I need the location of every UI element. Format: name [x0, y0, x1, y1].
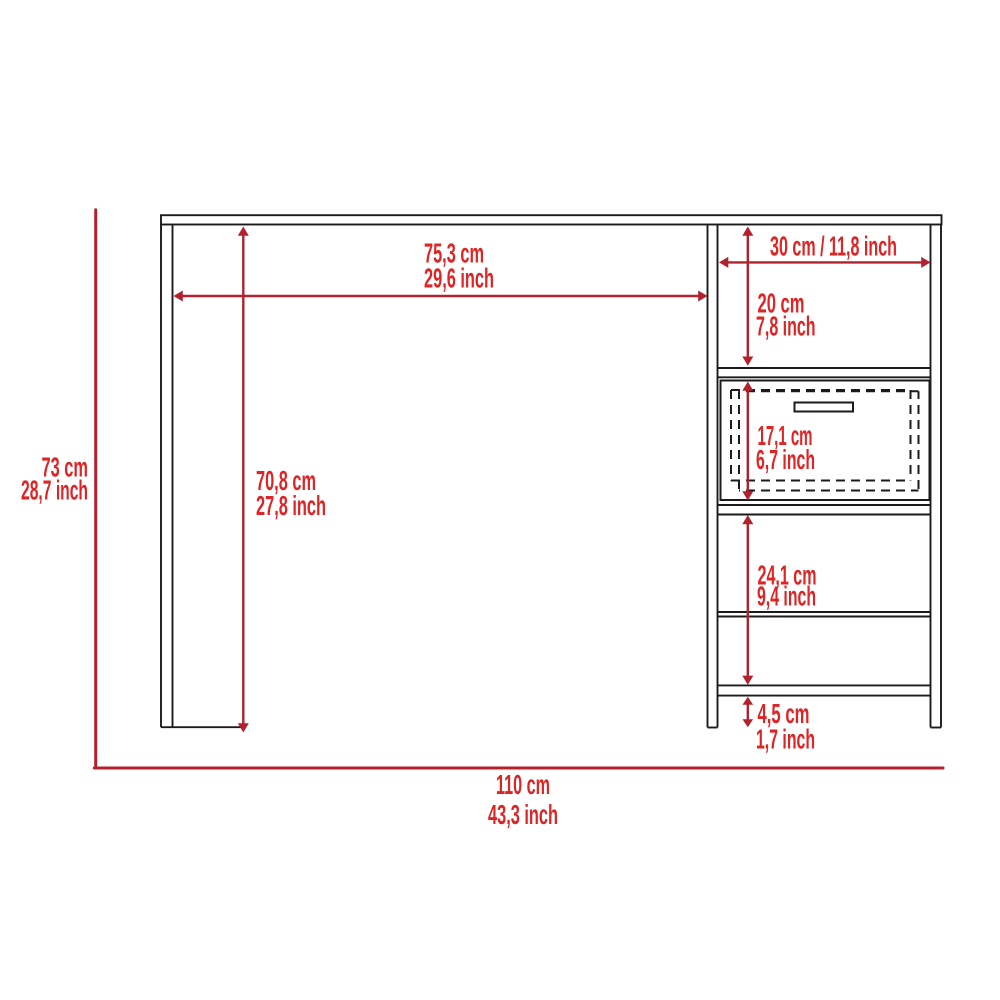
- svg-text:7,8 inch: 7,8 inch: [756, 311, 816, 342]
- svg-text:43,3 inch: 43,3 inch: [488, 799, 558, 830]
- svg-text:110 cm: 110 cm: [496, 769, 550, 800]
- svg-text:29,6 inch: 29,6 inch: [424, 262, 494, 293]
- svg-text:9,4 inch: 9,4 inch: [757, 580, 816, 611]
- svg-text:1,7 inch: 1,7 inch: [756, 723, 815, 754]
- svg-text:30 cm / 11,8 inch: 30 cm / 11,8 inch: [770, 231, 897, 262]
- svg-text:6,7 inch: 6,7 inch: [756, 444, 815, 475]
- svg-text:28,7 inch: 28,7 inch: [21, 475, 88, 506]
- svg-text:27,8 inch: 27,8 inch: [256, 490, 326, 521]
